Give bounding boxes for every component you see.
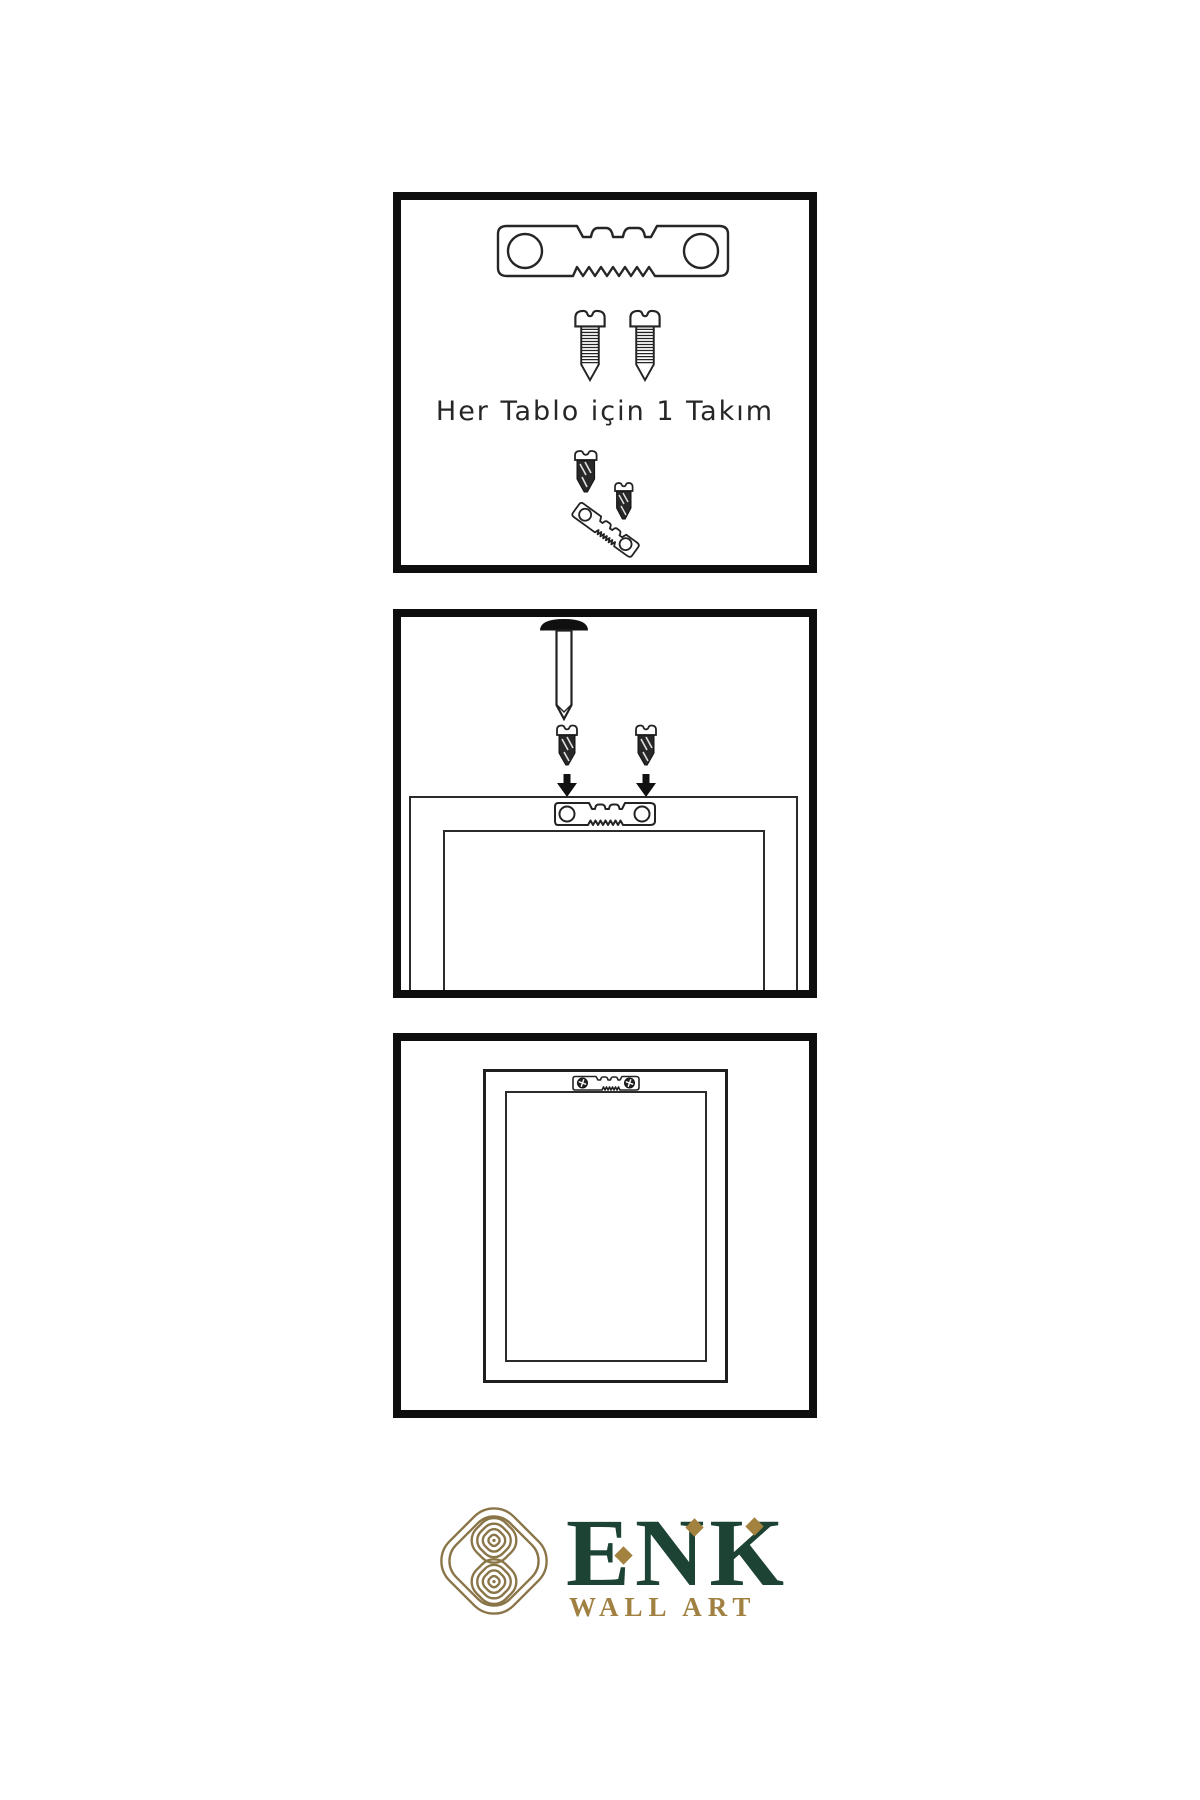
screw-into-hanger-icon — [565, 446, 665, 560]
step2-panel — [393, 609, 817, 998]
screw-down-arrow-icon — [633, 722, 659, 798]
screw-icon — [627, 307, 663, 383]
hanging-instruction-sheet: Her Tablo için 1 Takım — [0, 0, 1200, 1800]
step3-panel — [393, 1033, 817, 1418]
phillips-screw-head-icon — [624, 1078, 634, 1088]
installed-hanger-icon — [572, 1075, 641, 1091]
phillips-screw-head-icon — [577, 1078, 587, 1088]
hung-frame-inner-edge — [505, 1091, 707, 1362]
frame-back-inner-edge — [443, 830, 765, 998]
wall-nail-icon — [540, 617, 588, 721]
step1-panel: Her Tablo için 1 Takım — [393, 192, 817, 573]
sawtooth-hanger-icon — [553, 801, 657, 827]
brand-tagline: WALL ART — [569, 1593, 756, 1621]
screw-down-arrow-icon — [554, 722, 580, 798]
step1-caption: Her Tablo için 1 Takım — [401, 398, 809, 426]
sawtooth-hanger-icon — [495, 223, 731, 279]
screw-icon — [572, 307, 608, 383]
knot-logo-icon — [432, 1494, 556, 1628]
